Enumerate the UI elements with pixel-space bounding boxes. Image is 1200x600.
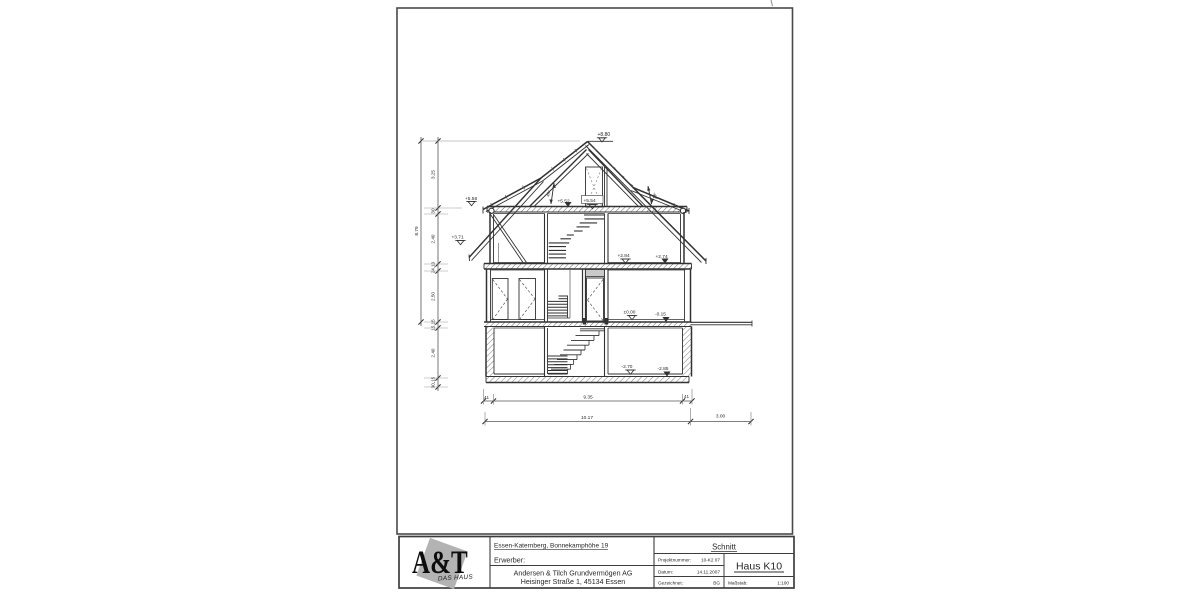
svg-text:Andersen & Tilch Grundvermögen: Andersen & Tilch Grundvermögen AG [514,570,633,578]
svg-text:Projektnummer:: Projektnummer: [658,558,691,563]
svg-text:-2.70: -2.70 [622,364,633,370]
svg-text:1:100: 1:100 [777,580,789,585]
svg-text:3.25: 3.25 [431,170,436,179]
svg-text:9.35: 9.35 [583,395,593,401]
svg-text:+2.84: +2.84 [618,253,630,259]
svg-text:41: 41 [684,394,690,399]
svg-text:+5.54: +5.54 [584,198,596,204]
svg-text:-2.85: -2.85 [658,366,669,372]
svg-text:Datum:: Datum: [658,569,673,574]
svg-text:10-K2 07: 10-K2 07 [701,558,720,563]
svg-text:±0.00: ±0.00 [624,310,636,316]
svg-text:10.17: 10.17 [581,415,593,421]
svg-text:BG: BG [713,580,720,585]
svg-text:2.50: 2.50 [431,292,436,301]
svg-text:8.79: 8.79 [414,226,420,236]
svg-text:41: 41 [484,395,490,400]
svg-text:30: 30 [431,208,436,214]
svg-text:14.11.2007: 14.11.2007 [697,569,721,574]
svg-text:Heisinger Straße 1, 45134 Esse: Heisinger Straße 1, 45134 Essen [521,578,626,586]
svg-text:Haus K10: Haus K10 [736,561,782,573]
svg-text:Schnitt: Schnitt [712,543,737,552]
svg-text:-0.15: -0.15 [655,312,666,318]
svg-text:Erwerber:: Erwerber: [494,556,525,565]
svg-text:2.40: 2.40 [431,234,436,243]
svg-text:Essen-Katernberg, Bonnekamphöh: Essen-Katernberg, Bonnekamphöhe 19 [494,543,609,550]
svg-text:Maßstab:: Maßstab: [728,580,748,585]
svg-text:Gezeichnet:: Gezeichnet: [658,580,683,585]
svg-text:2.40: 2.40 [431,348,436,357]
svg-text:15,15: 15,15 [431,319,436,331]
svg-text:3.00: 3.00 [716,414,726,420]
svg-text:24,10: 24,10 [431,261,436,273]
svg-text:+3.71: +3.71 [452,235,464,241]
svg-text:+8.80: +8.80 [598,132,611,138]
